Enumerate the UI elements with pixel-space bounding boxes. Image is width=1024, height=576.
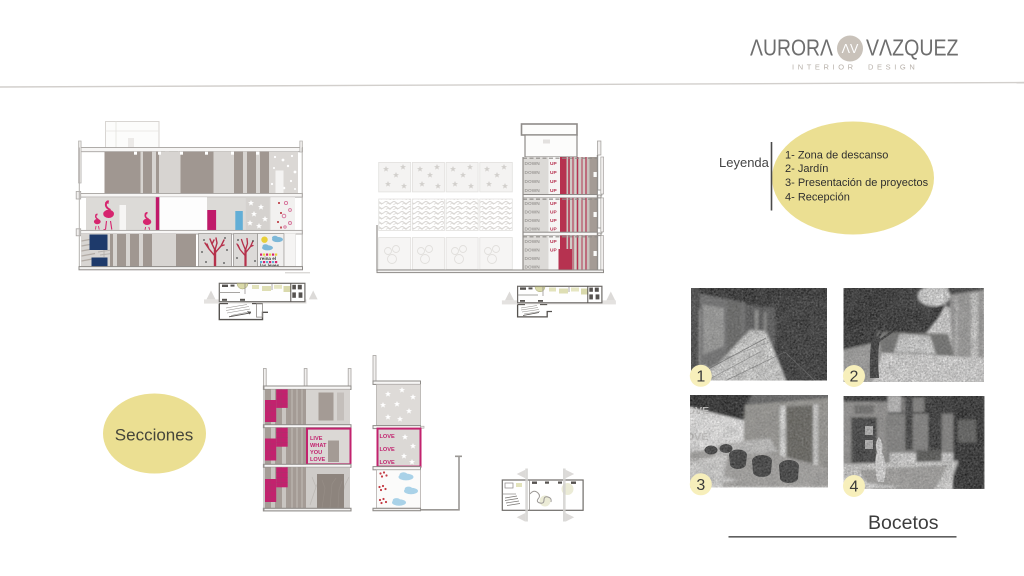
svg-text:WHAT: WHAT: [310, 443, 327, 449]
svg-text:reina el: reina el: [260, 256, 276, 261]
svg-text:DOWN: DOWN: [525, 218, 541, 224]
svg-text:DOWN: DOWN: [525, 170, 541, 176]
svg-text:UP: UP: [550, 210, 557, 216]
svg-text:UP: UP: [550, 239, 557, 245]
svg-text:4- Recepción: 4- Recepción: [785, 192, 850, 204]
svg-text:DOWN: DOWN: [525, 210, 541, 216]
svg-text:ΛURORΛ: ΛURORΛ: [750, 35, 833, 61]
svg-text:3- Presentación de proyectos: 3- Presentación de proyectos: [785, 177, 929, 189]
svg-text:Secciones: Secciones: [115, 426, 193, 445]
svg-text:2- Jardín: 2- Jardín: [785, 163, 828, 175]
svg-text:UP: UP: [550, 188, 557, 194]
svg-text:UP: UP: [550, 227, 557, 233]
svg-text:UP: UP: [550, 170, 557, 176]
svg-text:LIVE: LIVE: [310, 436, 323, 442]
svg-text:DOWN: DOWN: [525, 239, 541, 245]
svg-text:UP: UP: [550, 218, 557, 224]
svg-text:UP: UP: [550, 179, 557, 185]
svg-text:UP: UP: [550, 161, 557, 167]
svg-text:LOVE: LOVE: [380, 460, 395, 466]
svg-text:2: 2: [850, 369, 859, 386]
svg-text:LOVE: LOVE: [380, 434, 395, 440]
svg-text:DOWN: DOWN: [525, 179, 541, 185]
svg-text:INTERIOR DESIGN: INTERIOR DESIGN: [792, 63, 919, 72]
svg-text:DOWN: DOWN: [525, 188, 541, 194]
svg-text:UP: UP: [550, 201, 557, 207]
svg-text:LOVE: LOVE: [380, 447, 395, 453]
svg-text:Leyenda: Leyenda: [719, 155, 770, 170]
svg-text:DOWN: DOWN: [525, 161, 541, 167]
svg-text:LOVE: LOVE: [310, 457, 325, 463]
svg-text:DOWN: DOWN: [525, 248, 541, 254]
svg-text:VΛZQUEZ: VΛZQUEZ: [866, 35, 959, 61]
svg-text:1: 1: [696, 369, 705, 386]
svg-text:4: 4: [850, 479, 859, 496]
svg-text:UP: UP: [550, 248, 557, 254]
svg-text:1- Zona de descanso: 1- Zona de descanso: [785, 150, 888, 162]
svg-text:DOWN: DOWN: [525, 227, 541, 233]
svg-text:ΛV: ΛV: [842, 42, 859, 56]
svg-text:3: 3: [696, 477, 705, 494]
svg-text:Bocetos: Bocetos: [868, 512, 939, 534]
svg-text:YOU: YOU: [310, 450, 322, 456]
svg-text:DOWN: DOWN: [525, 256, 541, 262]
svg-text:DOWN: DOWN: [525, 201, 541, 207]
